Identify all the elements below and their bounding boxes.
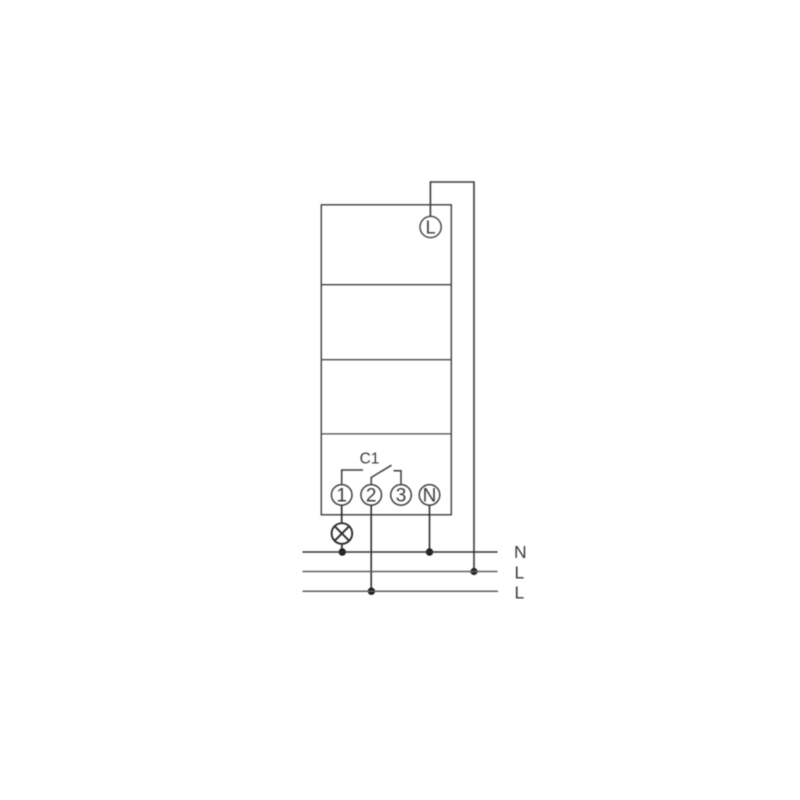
svg-text:2: 2 — [366, 486, 377, 507]
svg-text:3: 3 — [396, 486, 407, 507]
svg-text:N: N — [423, 486, 437, 507]
svg-text:L: L — [515, 562, 525, 582]
svg-text:L: L — [426, 217, 436, 237]
svg-text:N: N — [514, 542, 527, 562]
svg-text:L: L — [515, 582, 525, 602]
svg-text:C1: C1 — [360, 450, 380, 467]
svg-text:1: 1 — [336, 486, 347, 507]
